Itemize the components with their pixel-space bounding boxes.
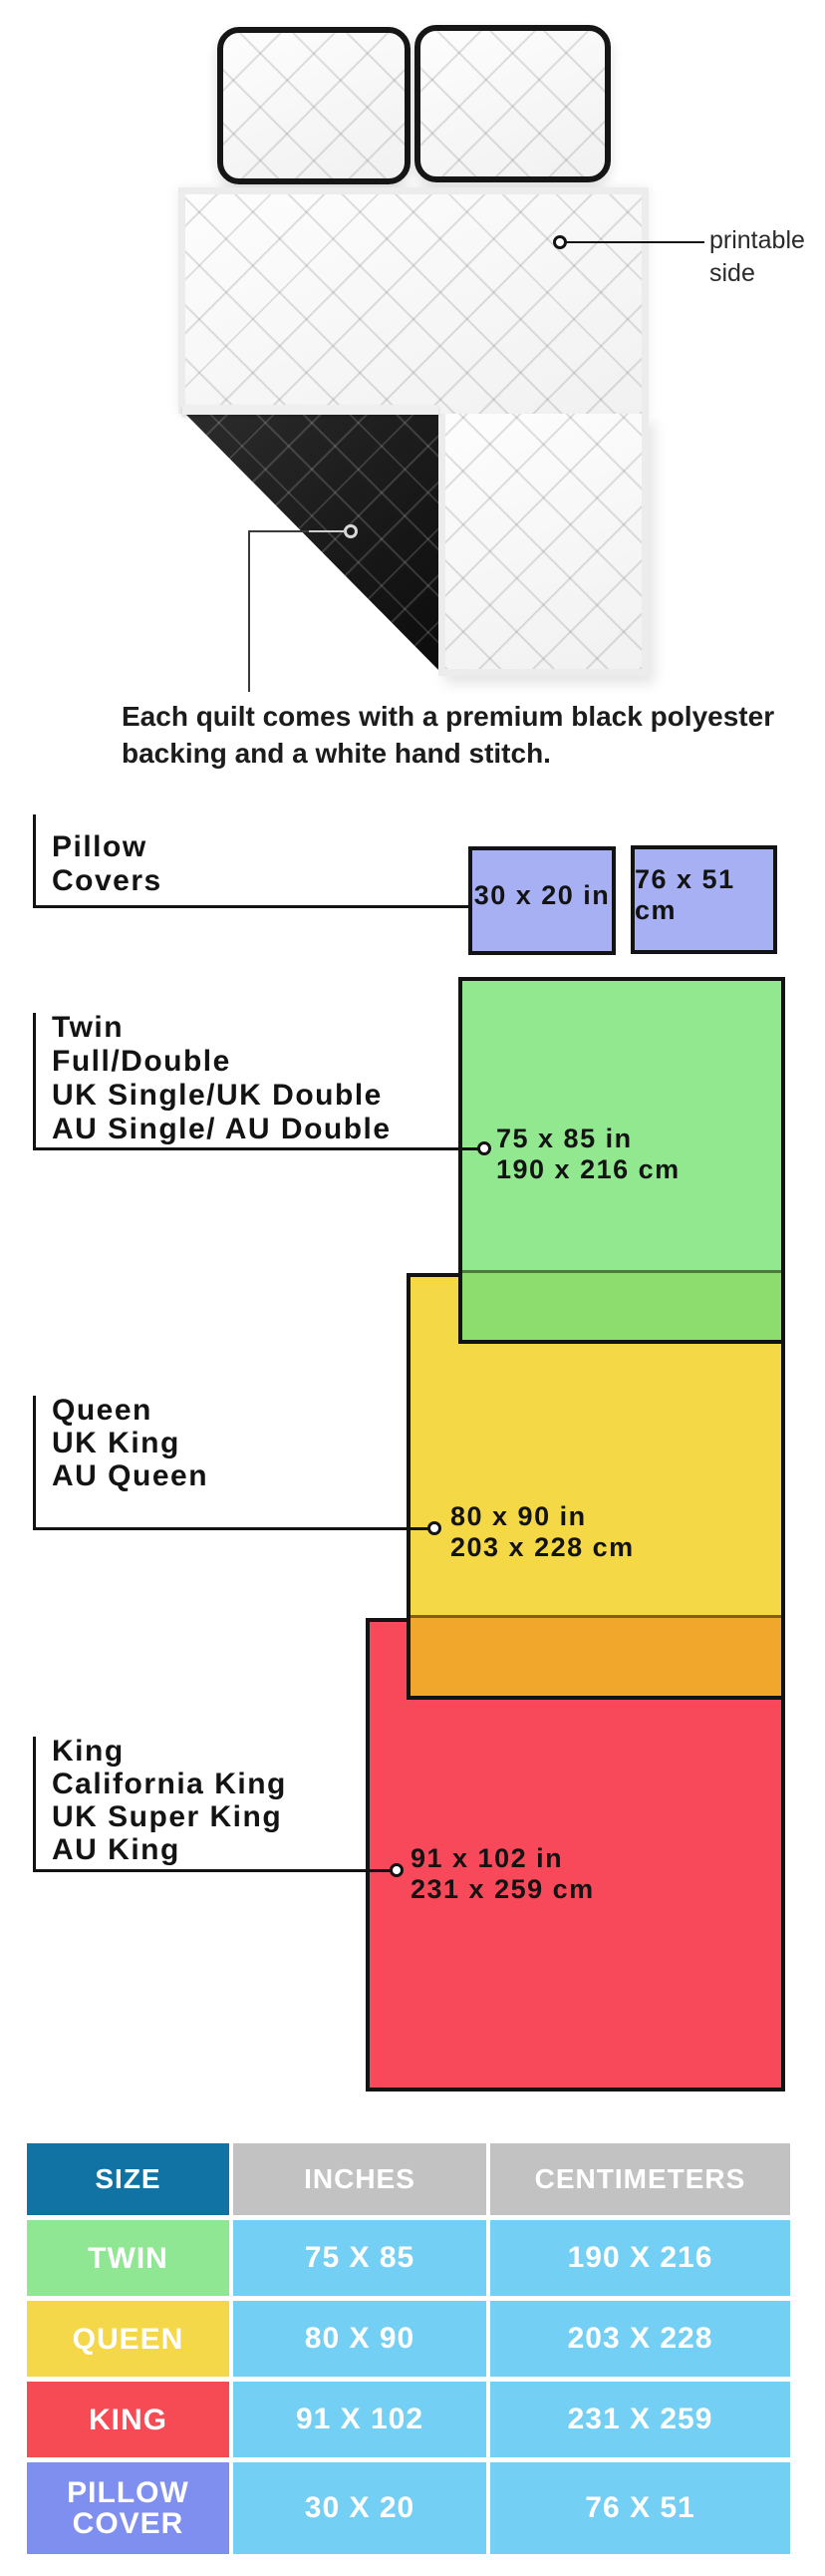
quilt-top-illustration [178, 187, 649, 414]
black-backing-leader-line [249, 530, 309, 532]
quilt-right-column-illustration [438, 414, 649, 676]
size-conversion-table: SIZE INCHES CENTIMETERS TWIN 75 X 85 190… [27, 2143, 790, 2554]
queen-name-1: Queen [52, 1394, 208, 1427]
table-header-size: SIZE [27, 2143, 229, 2215]
size-chart-infographic: printable side Each quilt comes with a p… [0, 0, 825, 2576]
twin-size-names: Twin Full/Double UK Single/UK Double AU … [52, 1011, 392, 1146]
table-header-inches: INCHES [233, 2143, 486, 2215]
king-name-3: UK Super King [52, 1800, 287, 1833]
table-row-twin-label: TWIN [27, 2220, 229, 2296]
pillow-cover-inches-box: 30 x 20 in [468, 846, 616, 955]
twin-dimensions: 75 x 85 in 190 x 216 cm [496, 1124, 681, 1185]
queen-name-3: AU Queen [52, 1459, 208, 1492]
caption-line-1: Each quilt comes with a premium black po… [122, 698, 774, 735]
twin-name-1: Twin [52, 1011, 392, 1045]
twin-marker-dot [477, 1141, 491, 1155]
twin-name-3: UK Single/UK Double [52, 1079, 392, 1113]
pillow-covers-bracket-horizontal [33, 905, 478, 908]
queen-size-centimeters: 203 x 228 cm [450, 1532, 635, 1563]
pillow-left-illustration [217, 27, 411, 184]
table-row-queen-inches: 80 X 90 [233, 2301, 486, 2377]
king-name-2: California King [52, 1768, 287, 1800]
black-backing-leader-line-light [309, 530, 346, 532]
twin-queen-overlap-strip [462, 1270, 781, 1340]
table-row-king-centimeters: 231 X 259 [490, 2382, 790, 2457]
king-bracket-vertical [33, 1737, 36, 1871]
table-row-queen-centimeters: 203 X 228 [490, 2301, 790, 2377]
table-row-pillow-cover-label: PILLOW COVER [27, 2462, 229, 2554]
queen-king-overlap-strip [411, 1615, 781, 1696]
quilt-black-backing-fold [185, 414, 438, 670]
pillow-right-illustration [414, 25, 611, 182]
king-marker-dot [390, 1863, 404, 1877]
pillow-cover-centimeters-value: 76 x 51 cm [635, 864, 773, 926]
pillow-covers-bracket-vertical [33, 814, 36, 907]
queen-dimensions: 80 x 90 in 203 x 228 cm [450, 1501, 635, 1563]
quilt-backing-caption: Each quilt comes with a premium black po… [122, 698, 774, 772]
table-row-twin-centimeters: 190 X 216 [490, 2220, 790, 2296]
king-size-names: King California King UK Super King AU Ki… [52, 1735, 287, 1866]
king-size-inches: 91 x 102 in [411, 1843, 595, 1874]
queen-size-names: Queen UK King AU Queen [52, 1394, 208, 1492]
table-row-twin-inches: 75 X 85 [233, 2220, 486, 2296]
table-row-queen-label: QUEEN [27, 2301, 229, 2377]
queen-bracket-horizontal [33, 1527, 428, 1530]
pillow-cover-inches-value: 30 x 20 in [474, 880, 611, 911]
king-name-4: AU King [52, 1833, 287, 1866]
black-backing-marker-dot [344, 524, 358, 538]
black-backing-leader-line-vertical [248, 530, 250, 692]
quilt-fold-edge [182, 405, 438, 415]
twin-size-centimeters: 190 x 216 cm [496, 1154, 681, 1185]
king-bracket-horizontal [33, 1869, 391, 1872]
king-name-1: King [52, 1735, 287, 1768]
twin-name-4: AU Single/ AU Double [52, 1113, 392, 1146]
table-row-king-label: KING [27, 2382, 229, 2457]
king-dimensions: 91 x 102 in 231 x 259 cm [411, 1843, 595, 1905]
queen-bracket-vertical [33, 1396, 36, 1529]
twin-size-inches: 75 x 85 in [496, 1124, 681, 1154]
table-row-pillow-cover-inches: 30 X 20 [233, 2462, 486, 2554]
printable-side-leader-line [565, 241, 704, 243]
caption-line-2: backing and a white hand stitch. [122, 735, 774, 772]
pillow-cover-centimeters-box: 76 x 51 cm [631, 845, 777, 954]
twin-name-2: Full/Double [52, 1045, 392, 1079]
queen-name-2: UK King [52, 1427, 208, 1459]
table-header-centimeters: CENTIMETERS [490, 2143, 790, 2215]
queen-size-inches: 80 x 90 in [450, 1501, 635, 1532]
table-row-king-inches: 91 X 102 [233, 2382, 486, 2457]
printable-side-label: printable side [709, 224, 821, 290]
queen-marker-dot [427, 1521, 441, 1535]
twin-bracket-horizontal [33, 1147, 478, 1150]
twin-bracket-vertical [33, 1013, 36, 1149]
pillow-covers-label: Pillow Covers [52, 830, 201, 898]
king-size-centimeters: 231 x 259 cm [411, 1874, 595, 1905]
table-row-pillow-cover-centimeters: 76 X 51 [490, 2462, 790, 2554]
